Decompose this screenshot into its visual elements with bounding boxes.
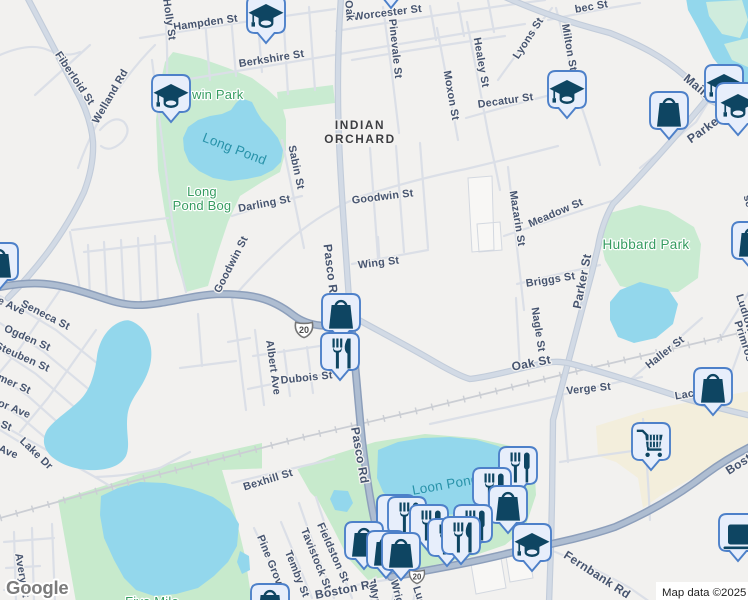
- svg-text:Pond Bog: Pond Bog: [173, 198, 232, 213]
- svg-text:Five Mile: Five Mile: [125, 594, 179, 600]
- svg-text:Oak: Oak: [342, 0, 356, 23]
- svg-text:Google: Google: [6, 577, 69, 598]
- svg-text:INDIAN: INDIAN: [335, 118, 385, 132]
- svg-text:win Park: win Park: [191, 87, 244, 102]
- svg-text:Hubbard Park: Hubbard Park: [603, 237, 690, 252]
- svg-text:ORCHARD: ORCHARD: [324, 132, 396, 146]
- svg-text:Map data ©2025: Map data ©2025: [662, 587, 746, 599]
- svg-text:Long: Long: [187, 184, 217, 199]
